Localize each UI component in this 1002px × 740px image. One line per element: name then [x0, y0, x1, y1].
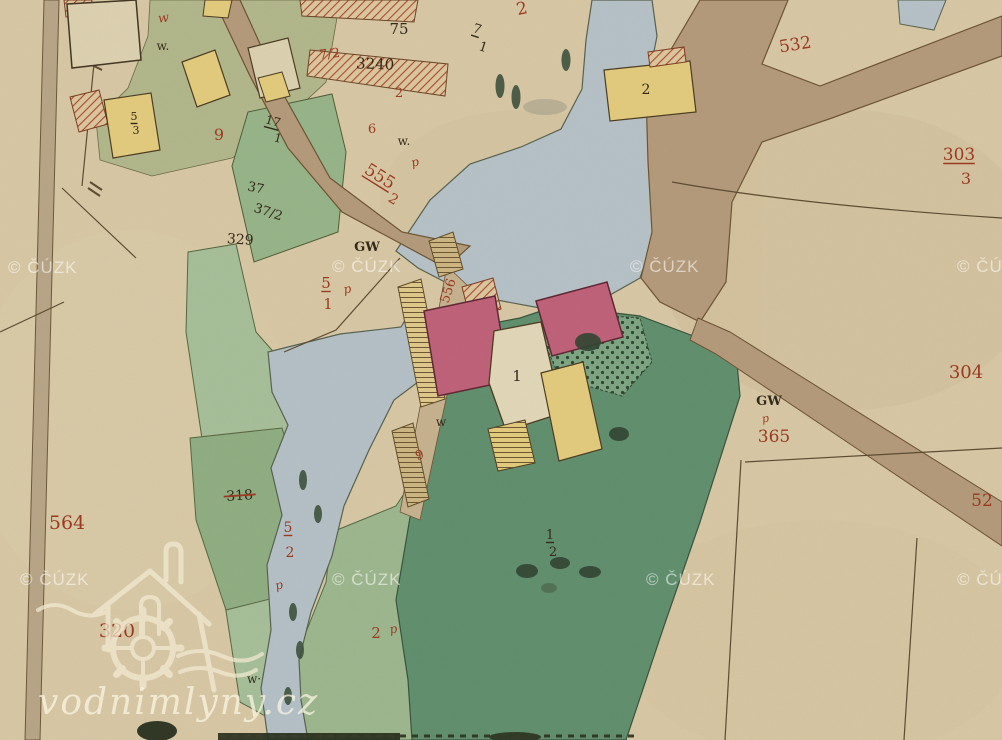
- cuzk-watermark: © ČÚZK: [957, 257, 1002, 276]
- parcel-label: 1: [323, 295, 333, 313]
- parcel-label: 2: [286, 545, 295, 561]
- parcel-label: 1: [546, 528, 554, 543]
- parcel-label: w.: [398, 134, 411, 148]
- parcel-label: 329: [226, 231, 254, 249]
- site-url-text: vodnimlyny.cz: [38, 682, 319, 723]
- parcel-label: GW: [354, 240, 380, 255]
- cuzk-watermark: © ČÚZK: [20, 570, 90, 589]
- parcel-label: 75: [389, 20, 408, 38]
- parcel-label: 9: [214, 125, 224, 144]
- cadastral-map-canvas: 2757/23240271ww.539171253230336w.p5552GW…: [0, 0, 1002, 740]
- parcel-label: 5: [131, 110, 138, 123]
- parcel-label: 303: [943, 145, 975, 165]
- parcel-label: 564: [49, 512, 85, 534]
- parcel-label: 2: [395, 86, 403, 101]
- cuzk-watermark: © ČÚZK: [957, 570, 1002, 589]
- cuzk-watermark: © ČÚZK: [646, 570, 716, 589]
- parcel-label: w: [436, 415, 447, 429]
- parcel-label: 5: [284, 520, 293, 536]
- map-viewport[interactable]: 2757/23240271ww.539171253230336w.p5552GW…: [0, 0, 1002, 740]
- cuzk-watermark: © ČÚZK: [332, 257, 402, 276]
- parcel-label: 3240: [356, 54, 395, 73]
- parcel-label: 5: [321, 274, 331, 292]
- parcel-label: 365: [758, 427, 790, 447]
- parcel-label: w.: [157, 39, 170, 53]
- parcel-label: w: [157, 10, 170, 26]
- parcel-label: 3: [961, 169, 971, 188]
- parcel-label: 2: [642, 82, 651, 98]
- parcel-label: 7/2: [318, 46, 340, 63]
- parcel-label: 304: [949, 362, 983, 383]
- parcel-label: GW: [756, 394, 782, 409]
- parcel-label: 6: [368, 122, 376, 137]
- paper-grain-overlay: [0, 0, 1002, 740]
- parcel-label: 2: [371, 624, 381, 642]
- cuzk-watermark: © ČÚZK: [8, 258, 78, 277]
- parcel-label: 3: [133, 124, 140, 137]
- parcel-label: 1: [512, 367, 522, 385]
- parcel-label: 52: [971, 491, 993, 511]
- cuzk-watermark: © ČÚZK: [332, 570, 402, 589]
- cuzk-watermark: © ČÚZK: [630, 257, 700, 276]
- parcel-label: 2: [549, 545, 557, 560]
